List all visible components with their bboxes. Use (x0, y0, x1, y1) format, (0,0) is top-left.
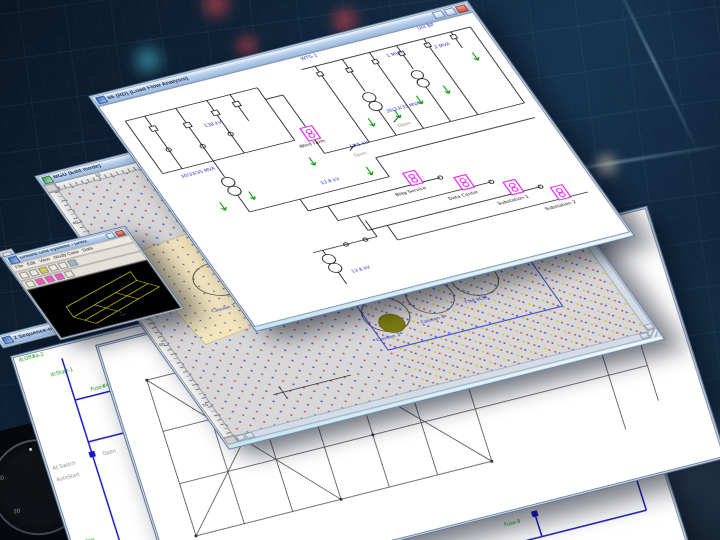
diagram-label: dcStart-1 (50, 368, 74, 379)
ruler-number: 10 (94, 172, 103, 178)
diagram-label: Substation 1 (497, 195, 530, 207)
diagram-label: 13.8 kV (351, 266, 372, 275)
diagram-label: 12.5 kV (349, 141, 370, 150)
diagram-label: Open (102, 449, 117, 457)
diagram-label: Caisson 3 (376, 334, 402, 344)
diagram-label: Data Center (448, 191, 480, 202)
diagram-label: 30/33/35 MVA (180, 167, 217, 180)
diagram-label: 77.4 kCM (464, 296, 490, 306)
diagram-label: 2 MVA (434, 43, 452, 51)
diagram-label: At Switch (52, 462, 76, 473)
ruler-number: 60 (158, 342, 167, 348)
diagram-label: Wind Farm (299, 140, 328, 151)
diagram-label: WTG-1 (300, 54, 319, 62)
diagram-label: 30/33/35 MVA (386, 102, 423, 115)
toolbar-icon[interactable] (67, 259, 79, 267)
diagram-label: Fuse-9 (504, 520, 522, 529)
diagram-label: Substation 2 (544, 200, 577, 212)
ruler-number: 70 (201, 403, 210, 409)
diagram-label: Caisson 4 (420, 315, 446, 325)
diagram-label: Util BP (417, 24, 436, 32)
diagram-label: 13.8 kV (320, 177, 341, 186)
diagram-label: Caisson 1 (211, 305, 237, 315)
desktop-scene: 40 20 2 Sequence-of-Operation (0, 0, 720, 540)
diagram-label: Open (397, 122, 413, 129)
diagram-label: dcOff#a-2 (18, 353, 44, 364)
diagram-label: 138 kV (204, 121, 224, 129)
diagram-label: 1 MVA (386, 51, 404, 59)
diagram-label: Open (353, 152, 369, 159)
diagram-label: AutoStart (56, 473, 81, 484)
ruler-number: 40 (71, 220, 80, 226)
diagram-label: Bldg Service (395, 187, 428, 199)
toolbar-icon[interactable] (63, 270, 75, 278)
